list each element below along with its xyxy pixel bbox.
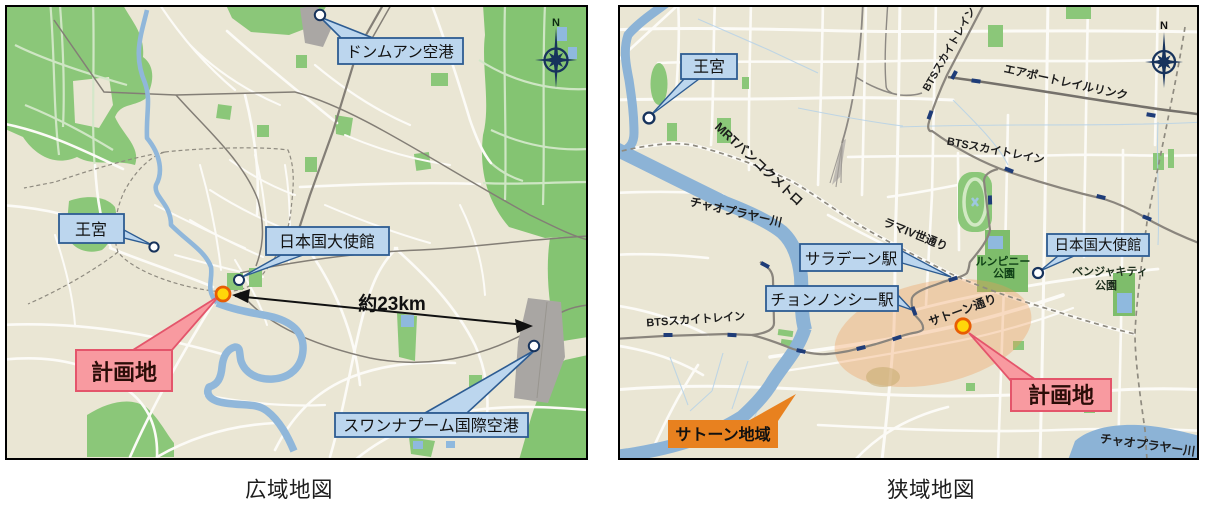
svg-text:計画地: 計画地 <box>1028 383 1094 408</box>
svg-text:公園: 公園 <box>993 267 1015 280</box>
svg-text:チョンノンシー駅: チョンノンシー駅 <box>770 292 894 309</box>
svg-text:王宮: 王宮 <box>693 58 725 76</box>
svg-text:王宮: 王宮 <box>75 221 107 239</box>
svg-text:ベンジャキティ: ベンジャキティ <box>1072 265 1148 278</box>
svg-text:サトーン地域: サトーン地域 <box>675 425 770 444</box>
svg-text:N: N <box>552 17 560 29</box>
svg-text:日本国大使館: 日本国大使館 <box>279 233 375 251</box>
svg-text:日本国大使館: 日本国大使館 <box>1055 237 1142 254</box>
svg-text:計画地: 計画地 <box>91 360 157 385</box>
svg-text:N: N <box>1160 20 1168 32</box>
svg-text:ルンピニー: ルンピニー <box>976 255 1031 268</box>
svg-text:ドンムアン空港: ドンムアン空港 <box>346 43 454 61</box>
svg-text:約23km: 約23km <box>358 292 426 315</box>
svg-text:スワンナプーム国際空港: スワンナプーム国際空港 <box>343 417 519 435</box>
svg-text:公園: 公園 <box>1095 279 1117 292</box>
svg-text:サラデーン駅: サラデーン駅 <box>805 249 898 268</box>
